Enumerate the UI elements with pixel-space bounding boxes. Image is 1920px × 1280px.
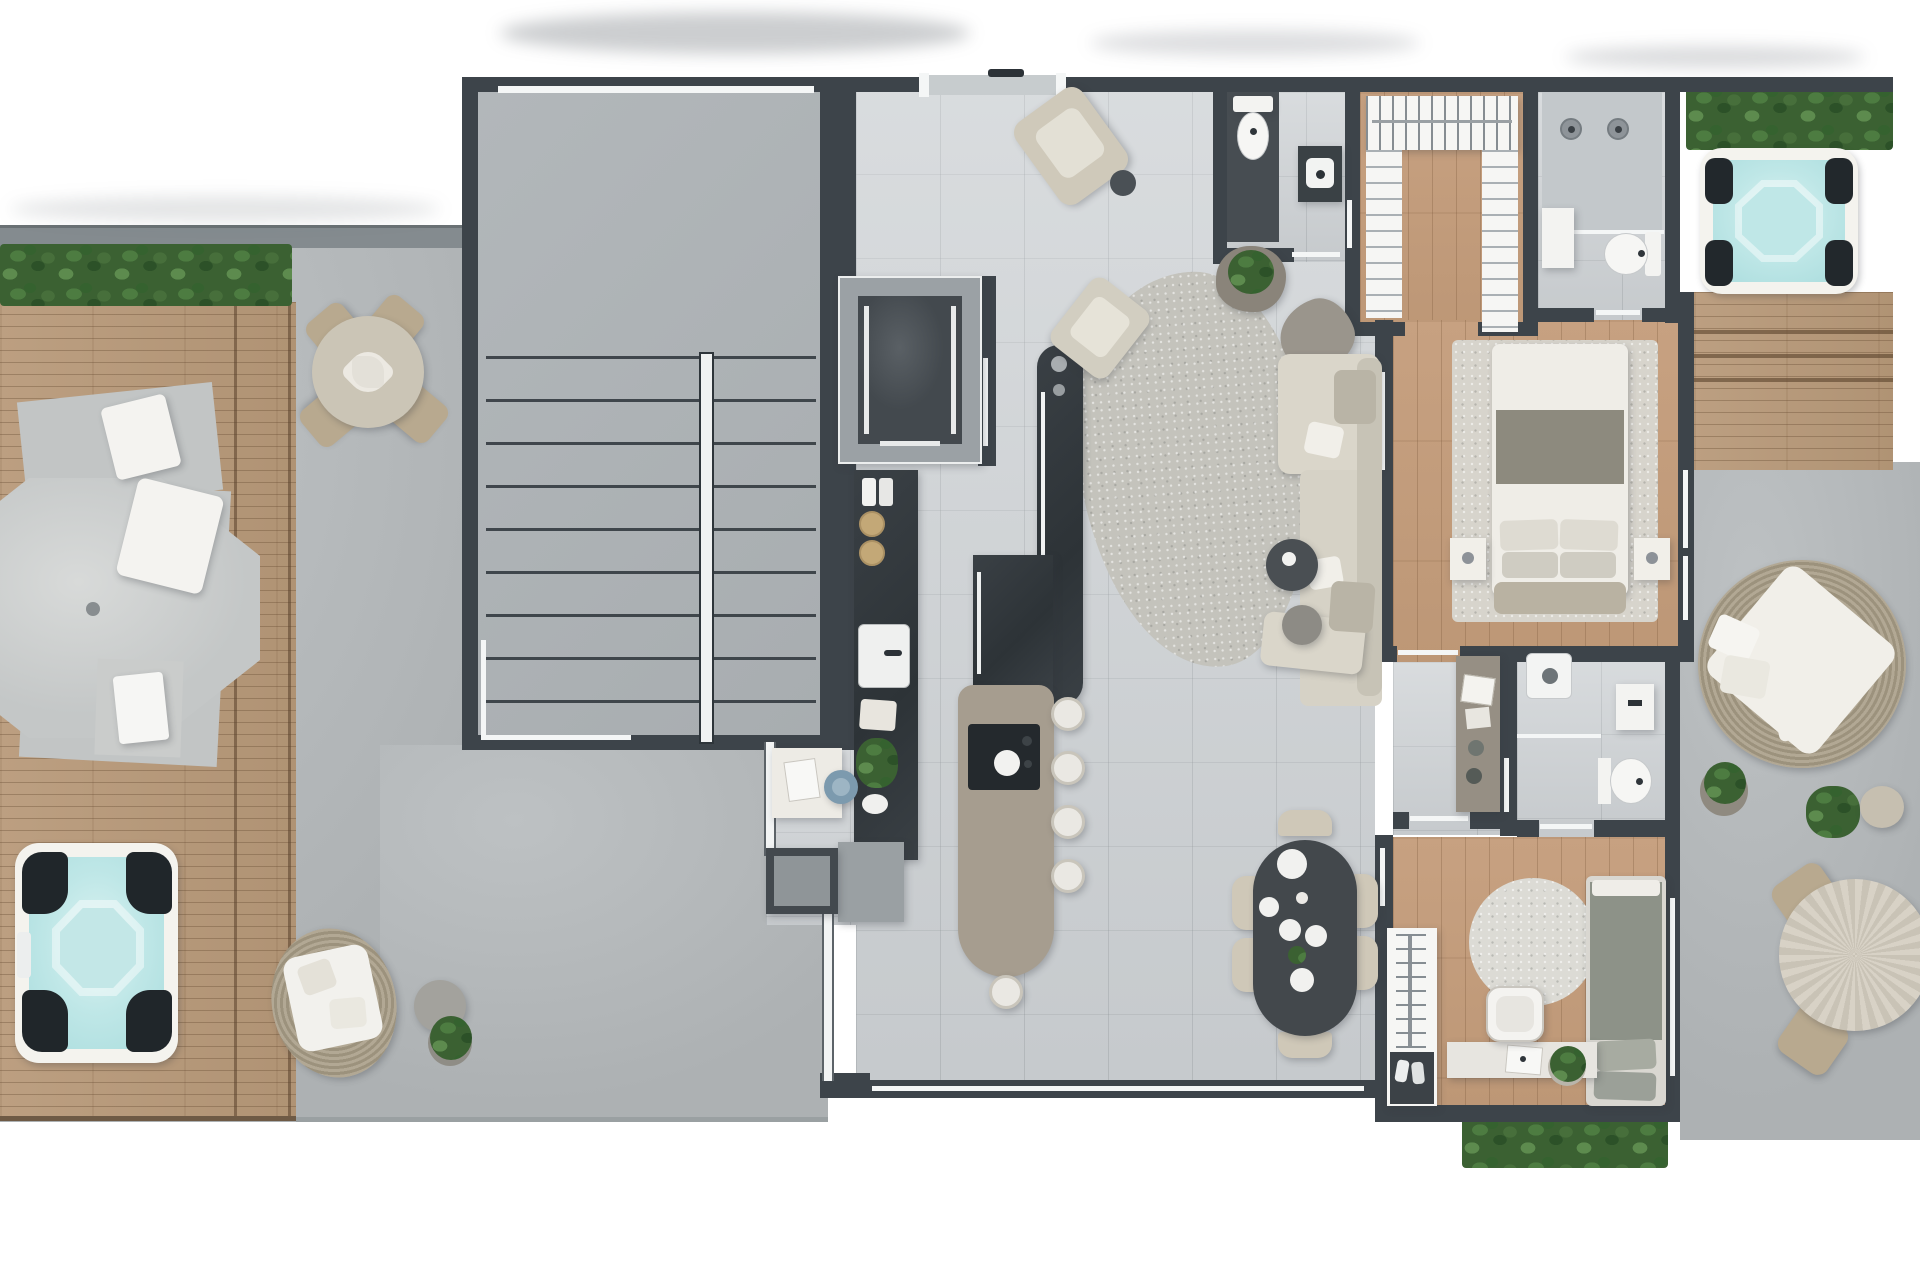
render-shadow-3 [10, 196, 440, 222]
dining-plant [1288, 946, 1306, 964]
deck-seam-1 [234, 302, 237, 1120]
kitchen-plant [856, 738, 898, 788]
bath2-glass-line [1517, 734, 1601, 738]
hall2-door-s [1410, 816, 1468, 821]
bar-stool-1 [1051, 697, 1085, 731]
kitchen-faucet [884, 650, 902, 656]
render-shadow-1 [500, 12, 970, 54]
stair-window-line [498, 86, 814, 93]
closet-rail-top [1372, 120, 1512, 123]
ne-hot-tub-seat-4 [1825, 240, 1853, 286]
dining-plate-5 [1290, 968, 1314, 992]
single-bed-pillow-2 [1594, 1071, 1657, 1101]
single-bed-pillow-1 [1595, 1038, 1656, 1071]
bedroom2-wall-south [1375, 1105, 1680, 1122]
terrace-edge-line-south [296, 1117, 828, 1122]
dining-plate-1 [1277, 849, 1307, 879]
ne-deck-step-3 [1694, 378, 1893, 382]
mbath-bench [1542, 208, 1574, 268]
kitchen-dish [862, 794, 888, 814]
island-tall-cabinet-line [977, 572, 981, 674]
sofa-throw-1 [1334, 370, 1376, 424]
master-bed-pillow-3 [1502, 552, 1558, 578]
elevator-rail-left [864, 306, 869, 434]
tv-knob-1 [1051, 356, 1067, 372]
hall2-wall-s1 [1393, 812, 1409, 829]
entry-door-handle [988, 69, 1024, 77]
sw-hot-tub-panel [17, 932, 31, 978]
masterbath-door-line [1596, 310, 1640, 315]
east-pouf-2 [1860, 786, 1904, 828]
stair-wall-west [462, 92, 478, 750]
lamp-right [1646, 552, 1658, 564]
island-burner-1 [1022, 736, 1032, 746]
bedroom-slide-e1 [1683, 470, 1688, 548]
master-bed-blanket [1496, 410, 1624, 484]
ne-hot-tub-seat-1 [1705, 158, 1733, 204]
living-small-pouf [1282, 605, 1322, 645]
sw-hot-tub-seat-1 [22, 852, 68, 914]
plant-pouf-greens [1228, 250, 1274, 294]
single-bed-top-pillow [1592, 880, 1660, 896]
closet-shelf-left [1366, 150, 1402, 318]
desk-nook-chair-seat [832, 778, 850, 796]
desk-nook-laptop [783, 758, 820, 802]
stair-treads [486, 356, 816, 742]
ne-hot-tub-seat-2 [1705, 240, 1733, 286]
hall2-art-frame-1 [1460, 674, 1496, 706]
bath2-vanity [1616, 684, 1654, 730]
east-round-table [1779, 879, 1920, 1031]
bar-stool-4 [1051, 859, 1085, 893]
bedroom2-chair-seat [1496, 996, 1534, 1032]
ne-planter [1686, 86, 1893, 150]
shower-head-1-dot [1568, 126, 1575, 133]
hall2-wall-s2 [1470, 812, 1517, 829]
bath2-shower-head [1542, 668, 1558, 684]
render-shadow-4 [1565, 46, 1865, 68]
island-burner-2 [1024, 760, 1032, 768]
bath2-wall-s1 [1517, 820, 1539, 837]
sw-hot-tub-seat-2 [22, 990, 68, 1052]
toilet-powder-tank [1233, 96, 1273, 112]
east-plant-2 [1806, 786, 1860, 838]
elevator-rail-right [951, 306, 956, 434]
elevator-door-sill [880, 441, 940, 446]
dining-chair-top [1278, 810, 1332, 836]
lamp-left [1462, 552, 1474, 564]
deck-edge-south [0, 1116, 296, 1121]
east-daybed-pillow-2 [1719, 654, 1771, 699]
powder-faucet [1316, 170, 1325, 179]
closet-shelf-right [1482, 150, 1518, 332]
render-shadow-2 [1090, 30, 1420, 56]
single-bed-duvet [1590, 882, 1662, 1040]
bath2-wall-east [1665, 650, 1680, 838]
bedroom2-door-w [1380, 848, 1385, 906]
outdoor-table-flower-2 [352, 356, 384, 388]
kitchen-cabinet-dark-inner [774, 856, 830, 906]
dining-cup [1296, 892, 1308, 904]
kitchen-board [859, 699, 897, 731]
masterbath-wall-s2 [1642, 308, 1680, 322]
closet-wall-east [1523, 92, 1538, 336]
floor-plan-canvas [0, 0, 1920, 1280]
kitchen-bottle-1 [862, 478, 876, 506]
bedroom2-shoe-2 [1411, 1061, 1425, 1084]
kitchen-plate-2 [859, 540, 885, 566]
bar-stool-5 [989, 975, 1023, 1009]
living-window-glass [872, 1086, 1364, 1091]
bedroom2-wardrobe-hangers [1396, 934, 1426, 1048]
sw-hot-tub-seat-3 [126, 852, 172, 914]
bedroom2-window-e [1670, 898, 1675, 1076]
coffee-cup [1282, 552, 1296, 566]
bedroom2-planter [1462, 1118, 1668, 1168]
elevator-cab [858, 296, 962, 444]
sofa-throw-2 [1328, 581, 1375, 634]
island-pot [994, 750, 1020, 776]
hall2-door-e [1504, 758, 1509, 816]
powder-door-line [1292, 252, 1340, 257]
kitchen-sink [858, 624, 910, 688]
dining-plate-3 [1305, 925, 1327, 947]
entry-door-jamb-left [919, 73, 929, 97]
kitchen-plate-1 [859, 511, 885, 537]
toilet-powder-flush [1250, 128, 1257, 135]
sw-plant [430, 1016, 472, 1060]
ne-hot-tub-seat-3 [1825, 158, 1853, 204]
bath2-door-s [1540, 824, 1592, 829]
nw-planter [0, 244, 292, 306]
east-plant-pouf-greens [1704, 762, 1746, 804]
hall2-knob-1 [1468, 740, 1484, 756]
bar-stool-3 [1051, 805, 1085, 839]
hall2-art-frame-2 [1465, 707, 1491, 729]
bar-stool-2 [1051, 751, 1085, 785]
master-bed-headboard [1494, 582, 1626, 614]
dining-plate-4 [1259, 897, 1279, 917]
sw-hot-tub-seat-4 [126, 990, 172, 1052]
ne-deck-step-2 [1694, 354, 1893, 358]
stair-center-rail [699, 352, 714, 744]
kitchen-bottle-2 [879, 478, 893, 506]
hall2-knob-2 [1466, 768, 1482, 784]
island-tall-cabinet [973, 555, 1053, 691]
master-bed-pillow-1 [1499, 519, 1558, 551]
toilet-master-flush [1638, 250, 1645, 257]
tv-knob-2 [1053, 384, 1065, 396]
masterbath-wall-s1 [1538, 308, 1594, 322]
towel [113, 672, 170, 745]
sw-rattan-pillow-2 [329, 996, 367, 1029]
parasol-pole [86, 602, 100, 616]
master-bed-pillow-4 [1560, 552, 1616, 578]
elevator-door-line [983, 358, 988, 446]
powder-wall-west [1213, 92, 1227, 264]
toilet-bath2-flush [1636, 778, 1643, 785]
closet-shelf-top [1366, 96, 1518, 150]
living-glass-wall-west [822, 913, 834, 1081]
bedroom-door-s [1398, 650, 1458, 655]
toilet-bath2-bowl [1610, 758, 1652, 804]
bedroom2-laptop-dot [1520, 1056, 1526, 1062]
toilet-powder-bowl [1237, 112, 1269, 160]
powder-door-line-e [1347, 200, 1352, 248]
dining-plate-2 [1279, 919, 1301, 941]
sw-hot-tub-ring-inner [60, 908, 136, 988]
ne-deck-step-1 [1694, 330, 1893, 334]
bedroom-slide-e2 [1683, 556, 1688, 620]
bath2-faucet [1628, 700, 1642, 706]
entry-side-table [1110, 170, 1136, 196]
kitchen-cabinet-gray [838, 842, 904, 922]
master-bed-pillow-2 [1559, 519, 1618, 551]
shower-head-2-dot [1615, 126, 1622, 133]
bedroom2-plant [1550, 1046, 1586, 1082]
entry-door-glass [927, 75, 1058, 95]
masterbath-wall-east [1665, 77, 1680, 323]
